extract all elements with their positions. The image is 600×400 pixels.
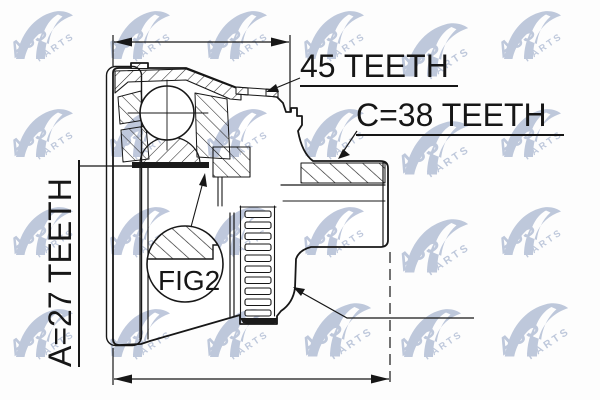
watermark-logo (294, 303, 375, 362)
watermark-logo (101, 11, 174, 64)
snap-ring-tab (131, 63, 148, 69)
label-fig2: FIG2 (158, 267, 220, 295)
diagram-page: AJS PARTS (0, 0, 600, 400)
label-c38-teeth: C=38 TEETH (356, 99, 564, 136)
stub-axle-spline-section (301, 163, 385, 183)
watermark-logo (491, 303, 572, 362)
inner-race-spline-bore (132, 162, 209, 168)
watermark-logo (492, 207, 565, 260)
leader-stem (297, 290, 474, 318)
watermark-logo (391, 219, 472, 278)
watermark-logo (4, 11, 77, 64)
watermark-logo (492, 11, 565, 64)
stem-section-hatch (213, 147, 250, 177)
watermark-logo (198, 11, 271, 64)
watermark-logo (4, 109, 77, 162)
label-45-teeth: 45 TEETH (300, 50, 458, 87)
watermark-logo (392, 309, 465, 362)
label-a27-teeth: A=27 TEETH (44, 160, 80, 367)
